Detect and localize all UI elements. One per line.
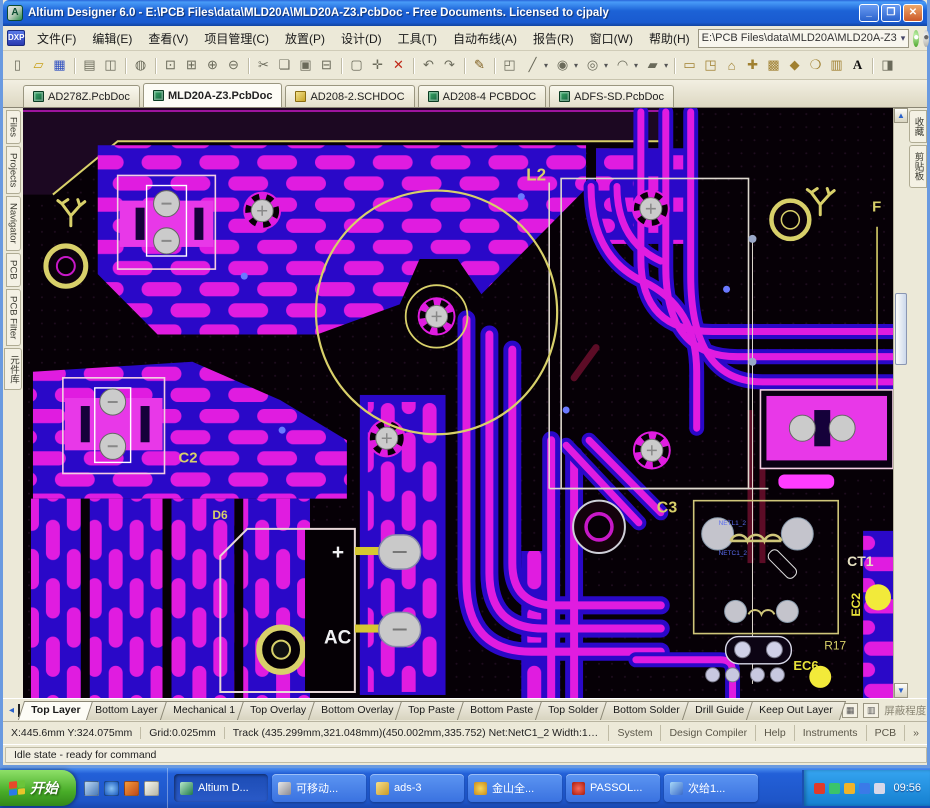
zoom-area-icon[interactable]: ⊞ (181, 55, 202, 75)
chevron-down-icon[interactable]: ▾ (604, 61, 608, 70)
label-ct1: CT1 (847, 553, 874, 569)
document-type-icon (295, 91, 306, 102)
print-preview-icon[interactable]: ◫ (100, 55, 121, 75)
layer-tab[interactable]: Drill Guide (682, 701, 757, 720)
chevron-down-icon[interactable]: ▾ (634, 61, 638, 70)
place-via-icon[interactable]: ◎ (582, 55, 603, 75)
chevron-down-icon[interactable]: ▾ (544, 61, 548, 70)
title-bar: A Altium Designer 6.0 - E:\PCB Files\dat… (3, 0, 927, 26)
redo-icon[interactable]: ↷ (439, 55, 460, 75)
place-array-icon[interactable]: ▩ (763, 55, 784, 75)
menu-item[interactable]: 项目管理(C) (196, 27, 277, 50)
track-info: Track (435.299mm,321.048mm)(450.002mm,33… (224, 727, 609, 739)
place-polygon-icon[interactable]: ⌂ (721, 55, 742, 75)
task-button-ads3-folder[interactable]: ads-3 (370, 774, 464, 802)
panel-button[interactable]: PCB (866, 725, 905, 741)
task-button-label: PASSOL... (590, 782, 642, 794)
mask-dim-button[interactable]: ▥ (863, 703, 879, 718)
restore-button[interactable]: ❐ (881, 4, 901, 22)
tray-update-icon[interactable] (844, 783, 855, 794)
minimize-button[interactable]: _ (859, 4, 879, 22)
mounting-hole (46, 246, 86, 286)
document-path-value: E:\PCB Files\data\MLD20A\MLD20A-Z3 (702, 32, 897, 44)
panel-tab[interactable]: Files (6, 110, 21, 144)
place-keepout-icon[interactable]: ◆ (784, 55, 805, 75)
chevron-down-icon[interactable]: ▾ (664, 61, 668, 70)
label-r17: R17 (824, 639, 846, 653)
label-ac: AC (324, 628, 352, 649)
task-button-icon (670, 782, 683, 795)
layer-tab[interactable]: Top Overlay (237, 701, 319, 720)
scroll-down-icon[interactable]: ▼ (894, 683, 908, 698)
document-tab-label: AD208-2.SCHDOC (310, 91, 404, 103)
zoom-in-icon[interactable]: ⊕ (202, 55, 223, 75)
open-document-icon[interactable]: ▱ (28, 55, 49, 75)
left-panel-tab-strip: FilesProjectsNavigatorPCBPCB Filter元件库 (3, 108, 23, 698)
label-plus: + (332, 541, 344, 564)
zoom-out-icon[interactable]: ⊖ (223, 55, 244, 75)
chevron-down-icon[interactable]: ▾ (574, 61, 578, 70)
label-ec6: EC6 (793, 658, 818, 673)
pencil-icon[interactable]: ✎ (469, 55, 490, 75)
task-button-icon (572, 782, 585, 795)
menu-item[interactable]: 编辑(E) (84, 27, 140, 50)
layer-tab[interactable]: Top Layer (18, 701, 94, 720)
status-bar: X:445.6mm Y:324.075mm Grid:0.025mm Track… (3, 721, 927, 744)
quick-launch-doc-icon[interactable] (144, 781, 159, 796)
task-button-icon (180, 782, 193, 795)
task-button-altium[interactable]: Altium D... (174, 774, 268, 802)
document-tab[interactable]: AD208-4 PCBDOC (418, 85, 547, 107)
menu-item[interactable]: 窗口(W) (582, 27, 641, 50)
task-button-passol[interactable]: PASSOL... (566, 774, 660, 802)
place-arc-icon[interactable]: ◠ (612, 55, 633, 75)
select-area-icon[interactable]: ▢ (346, 55, 367, 75)
document-type-icon (559, 91, 570, 102)
menu-item[interactable]: 工具(T) (390, 27, 445, 50)
document-tab-bar: AD278Z.PcbDoc MLD20A-Z3.PcbDoc AD208-2.S… (3, 80, 927, 108)
label-d6: D6 (212, 508, 228, 522)
place-coordinate-icon[interactable]: ✚ (742, 55, 763, 75)
panel-tab[interactable]: 剪贴板 (909, 145, 927, 188)
layer-tab[interactable]: Mechanical 1 (160, 701, 248, 720)
tray-messenger-icon[interactable] (829, 783, 840, 794)
label-c3: C3 (657, 499, 677, 517)
cut-icon[interactable]: ✂ (253, 55, 274, 75)
menu-item[interactable]: 查看(V) (140, 27, 196, 50)
main-toolbar: ▯▱▦▤◫◍⊡⊞⊕⊖✂❏▣⊟▢✛✕↶↷✎◰ ╱▾◉▾◎▾◠▾▰▾ ▭◳⌂✚▩◆❍… (3, 51, 927, 80)
panel-button[interactable]: System (608, 725, 660, 741)
scroll-left-icon[interactable]: ◂ (6, 705, 17, 716)
document-tab-label: AD208-4 PCBDOC (443, 91, 537, 103)
place-pad-icon[interactable]: ◉ (552, 55, 573, 75)
windows-taskbar: 开始 Altium D... 可移动... ads-3 金山全... (0, 768, 930, 808)
clear-filter-icon[interactable]: ✕ (388, 55, 409, 75)
task-button-icon (474, 782, 487, 795)
scroll-up-icon[interactable]: ▲ (894, 108, 908, 123)
document-tab[interactable]: MLD20A-Z3.PcbDoc (143, 83, 283, 107)
menu-item[interactable]: 报告(R) (525, 27, 582, 50)
panel-tab[interactable]: 元件库 (4, 348, 22, 391)
paste-special-icon[interactable]: ⊟ (316, 55, 337, 75)
cursor-coordinates: X:445.6mm Y:324.075mm (3, 727, 140, 739)
menu-item[interactable]: 放置(P) (277, 27, 333, 50)
help-pointer-icon[interactable]: ◨ (877, 55, 898, 75)
home-page-icon[interactable]: ● (913, 30, 919, 47)
panel-tab[interactable]: Navigator (6, 196, 21, 251)
tray-network-icon[interactable] (859, 783, 870, 794)
mask-level-label: 屏蔽程度 (884, 703, 926, 718)
menu-item[interactable]: 文件(F) (29, 27, 84, 50)
save-icon[interactable]: ▦ (49, 55, 70, 75)
task-button-removable-disk[interactable]: 可移动... (272, 774, 366, 802)
document-type-icon (428, 91, 439, 102)
system-tray: 09:56 (802, 770, 930, 806)
document-tab[interactable]: AD208-2.SCHDOC (285, 85, 414, 107)
tray-volume-icon[interactable] (874, 783, 885, 794)
document-path-combo[interactable]: E:\PCB Files\data\MLD20A\MLD20A-Z3 ▾ (698, 29, 910, 48)
idle-status-bar: Idle state - ready for command (3, 744, 927, 765)
copy-icon[interactable]: ❏ (274, 55, 295, 75)
menu-bar: DXP 文件(F)编辑(E)查看(V)项目管理(C)放置(P)设计(D)工具(T… (3, 26, 927, 51)
quick-launch-desktop-icon[interactable] (84, 781, 99, 796)
quick-launch-media-icon[interactable] (124, 781, 139, 796)
document-tab[interactable]: ADFS-SD.PcbDoc (549, 85, 674, 107)
task-button-label: ads-3 (394, 782, 422, 794)
panel-button[interactable]: » (904, 725, 927, 741)
dxp-menu-icon[interactable]: DXP (7, 30, 25, 46)
taskbar-clock: 09:56 (893, 782, 921, 794)
app-icon: A (7, 5, 23, 21)
grid-setting: Grid:0.025mm (140, 727, 224, 739)
net-label: NETC1_2 (719, 550, 748, 557)
document-tab-label: AD278Z.PcbDoc (48, 91, 130, 103)
layer-tab[interactable]: Bottom Overlay (308, 701, 407, 720)
layer-tab[interactable]: Bottom Solder (600, 701, 693, 720)
grid-settings-icon[interactable]: ▥ (826, 55, 847, 75)
right-panel-tab-strip: 收藏剪贴板 (908, 108, 927, 698)
undo-icon[interactable]: ↶ (418, 55, 439, 75)
mounting-hole (771, 201, 809, 239)
panel-tab[interactable]: PCB (6, 253, 21, 287)
vertical-scrollbar[interactable]: ▲ ▼ (893, 108, 908, 698)
task-button-label: Altium D... (198, 782, 249, 794)
zoom-fit-icon[interactable]: ⊡ (160, 55, 181, 75)
task-button-label: 金山全... (492, 780, 534, 796)
task-button-icon (376, 782, 389, 795)
document-tab-label: MLD20A-Z3.PcbDoc (168, 90, 273, 102)
move-icon[interactable]: ✛ (367, 55, 388, 75)
task-button-icon (278, 782, 291, 795)
document-type-icon (33, 91, 44, 102)
browse-documents-icon[interactable]: ◍ (130, 55, 151, 75)
mounting-hole (259, 628, 303, 672)
panel-button[interactable]: Instruments (794, 725, 866, 741)
layer-tab-bar: ◂ Top LayerBottom LayerMechanical 1Top O… (3, 698, 927, 721)
start-button-label: 开始 (30, 778, 58, 798)
task-button-chat[interactable]: 次给1... (664, 774, 758, 802)
board-view-icon[interactable]: ◰ (499, 55, 520, 75)
label-f: F (872, 199, 881, 216)
menu-item[interactable]: 自动布线(A) (445, 27, 525, 50)
panel-tab[interactable]: PCB Filter (6, 289, 21, 346)
place-string-icon[interactable]: A (847, 55, 868, 75)
idle-status-text: Idle state - ready for command (5, 747, 927, 763)
label-l2: L2 (526, 165, 546, 184)
window-title: Altium Designer 6.0 - E:\PCB Files\data\… (28, 7, 859, 19)
label-c2: C2 (178, 449, 197, 466)
task-button-label: 可移动... (296, 780, 338, 796)
menu-item[interactable]: 设计(D) (333, 27, 390, 50)
tray-antivirus-icon[interactable] (814, 783, 825, 794)
pcb-canvas[interactable]: L2 C2 C3 D6 F CT1 R17 EC6 EC2 + AC NETL1… (23, 108, 893, 698)
panel-button[interactable]: Help (755, 725, 794, 741)
scrollbar-thumb[interactable] (895, 293, 907, 365)
new-document-icon[interactable]: ▯ (7, 55, 28, 75)
net-label: NETL1_2 (719, 520, 747, 527)
chevron-down-icon[interactable]: ▾ (897, 33, 906, 44)
place-component-icon[interactable]: ◳ (700, 55, 721, 75)
mounting-hole (573, 501, 625, 553)
start-button[interactable]: 开始 (0, 770, 76, 806)
document-type-icon (153, 90, 164, 101)
panel-tab[interactable]: 收藏 (909, 110, 927, 143)
layer-tab[interactable]: Keep Out Layer (746, 701, 846, 720)
print-icon[interactable]: ▤ (79, 55, 100, 75)
menu-item[interactable]: 帮助(H) (641, 27, 698, 50)
paste-icon[interactable]: ▣ (295, 55, 316, 75)
document-tab-label: ADFS-SD.PcbDoc (574, 91, 664, 103)
highlight-pad (865, 584, 891, 610)
close-button[interactable]: ✕ (903, 4, 923, 22)
label-ec2: EC2 (849, 593, 863, 617)
windows-flag-icon (9, 780, 25, 796)
quick-launch-ie-icon[interactable] (104, 781, 119, 796)
panel-button[interactable]: Design Compiler (660, 725, 755, 741)
favorites-icon[interactable]: ● (923, 30, 929, 47)
panel-tab[interactable]: Projects (6, 146, 21, 194)
mask-mode-button[interactable]: ▦ (842, 703, 858, 718)
interactive-routing-icon[interactable]: ╱ (522, 55, 543, 75)
layer-tab[interactable]: Bottom Paste (457, 701, 546, 720)
scrollbar-track[interactable] (894, 123, 908, 683)
task-button-label: 次给1... (688, 780, 725, 796)
task-button-kingsoft[interactable]: 金山全... (468, 774, 562, 802)
place-circle-icon[interactable]: ❍ (805, 55, 826, 75)
layer-tab[interactable]: Bottom Layer (82, 701, 171, 720)
place-room-icon[interactable]: ▭ (679, 55, 700, 75)
document-tab[interactable]: AD278Z.PcbDoc (23, 85, 140, 107)
altium-window: A Altium Designer 6.0 - E:\PCB Files\dat… (0, 0, 930, 768)
place-fill-icon[interactable]: ▰ (642, 55, 663, 75)
